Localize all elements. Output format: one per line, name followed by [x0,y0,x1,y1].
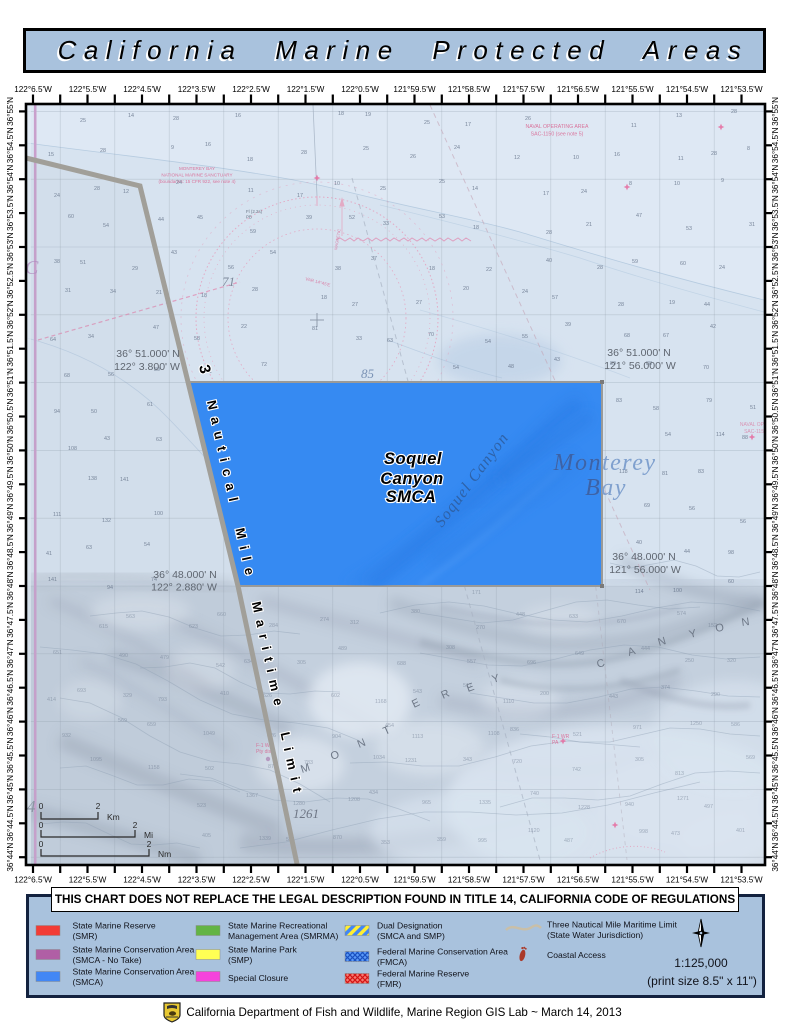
svg-text:Three Nautical Mile Maritime L: Three Nautical Mile Maritime Limit [547,920,678,930]
svg-text:Coastal Access: Coastal Access [547,950,606,960]
svg-text:State Marine Park: State Marine Park [228,945,297,955]
svg-text:Federal Marine Reserve: Federal Marine Reserve [377,969,469,979]
svg-text:(FMCA): (FMCA) [377,957,407,967]
svg-text:(SMCA and SMP): (SMCA and SMP) [377,931,445,941]
svg-text:Management Area (SMRMA): Management Area (SMRMA) [228,931,338,941]
svg-text:(State Water Jurisdiction): (State Water Jurisdiction) [547,930,643,940]
svg-text:(FMR): (FMR) [377,979,401,989]
svg-text:(SMCA): (SMCA) [73,977,104,987]
svg-text:Special Closure: Special Closure [228,973,288,983]
svg-text:California Department of Fish: California Department of Fish and Wildli… [186,1006,621,1019]
svg-text:1:125,000: 1:125,000 [674,956,728,970]
svg-text:(SMP): (SMP) [228,955,252,965]
svg-text:(SMR): (SMR) [73,931,98,941]
svg-text:(SMCA - No Take): (SMCA - No Take) [73,955,142,965]
svg-text:State Marine Recreational: State Marine Recreational [228,921,327,931]
svg-text:Dual Designation: Dual Designation [377,921,443,931]
svg-text:State Marine Conservation Area: State Marine Conservation Area [73,945,195,955]
svg-text:Federal Marine Conservation Ar: Federal Marine Conservation Area [377,947,508,957]
svg-text:State Marine Reserve: State Marine Reserve [73,921,156,931]
svg-text:(print size 8.5" x 11"): (print size 8.5" x 11") [647,974,757,988]
svg-text:State Marine Conservation Area: State Marine Conservation Area [73,967,195,977]
